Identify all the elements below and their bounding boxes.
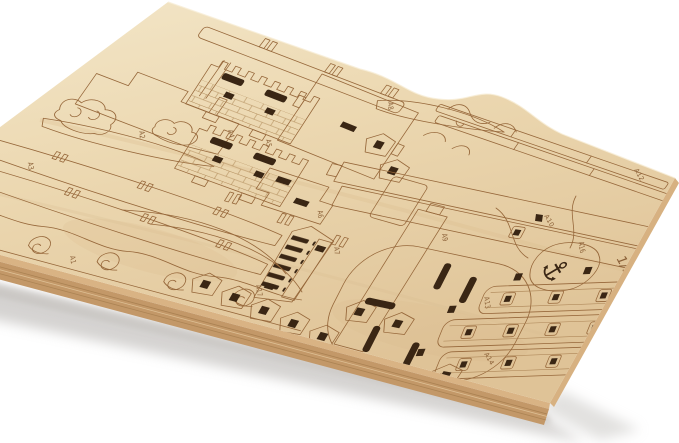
part-label-a8: A8 (386, 101, 395, 110)
product-photo: A2 A3 A1 (0, 0, 679, 443)
plywood-sheet-photo: A2 A3 A1 (0, 0, 679, 443)
part-label-a17: A17 (254, 284, 264, 298)
